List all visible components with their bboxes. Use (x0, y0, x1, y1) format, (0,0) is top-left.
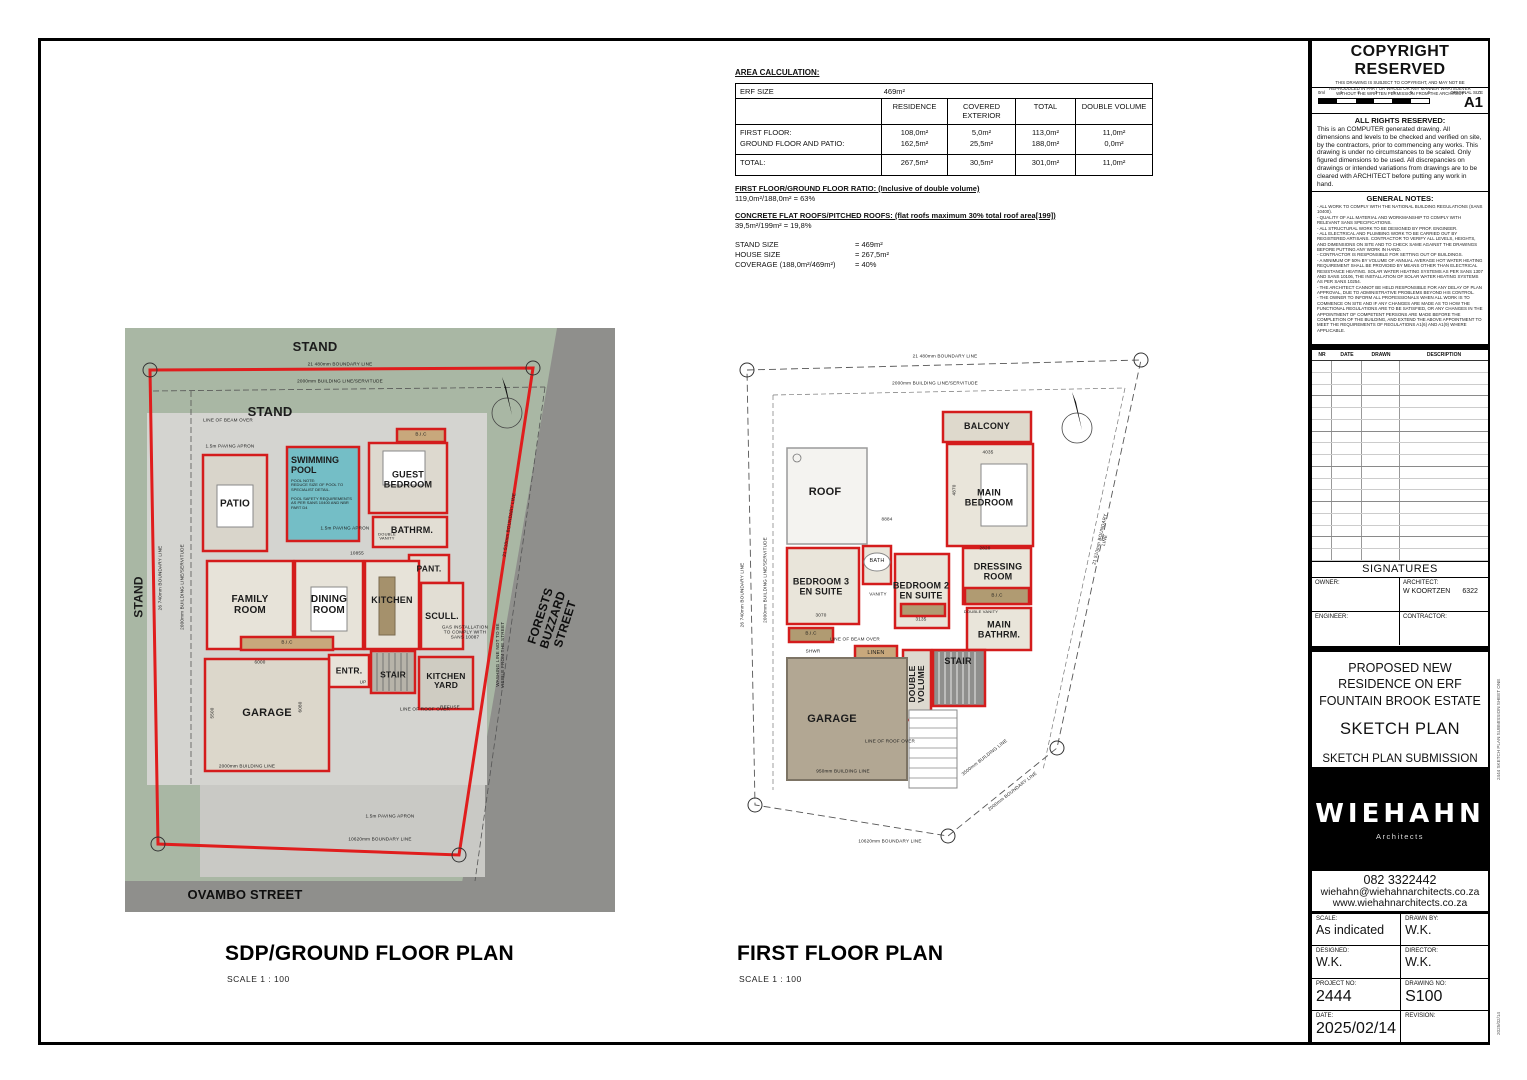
title-block: COPYRIGHT RESERVED THIS DRAWING IS SUBJE… (1308, 41, 1488, 1042)
area-calculation-table: ERF SIZE 469m² RESIDENCE COVERED EXTERIO… (735, 83, 1153, 176)
bic-label: B.I.C (415, 433, 426, 438)
pool-note: POOL NOTE: REDUCE SIZE OF POOL TO SPECIA… (291, 479, 352, 510)
vanity-label: VANITY (869, 593, 886, 598)
firm-website: www.wiehahnarchitects.co.za (1312, 898, 1488, 909)
dim-6000: 6000 (254, 661, 265, 666)
firm-tagline: Architects (1312, 832, 1488, 841)
revision-row (1312, 549, 1488, 561)
erf-size-value: 469m² (884, 87, 905, 95)
room-label-scullery: SCULL. (425, 612, 459, 622)
sheet-edge-note: 2444 SKETCH PLAN SUBMISSION SHEET ONE (1496, 679, 1501, 780)
paved-stand-lower (200, 785, 485, 877)
drawing-sheet: AREA CALCULATION: ERF SIZE 469m² RESIDEN… (0, 0, 1527, 1080)
room-label-bathrm: BATHRM. (391, 526, 433, 536)
north-arrow-icon (1062, 392, 1092, 443)
signatures-heading: SIGNATURES (1312, 562, 1488, 578)
revision-row (1312, 432, 1488, 444)
room-label-entrance: ENTR. (336, 666, 363, 675)
revision-row (1312, 455, 1488, 467)
building-line-bottom-dim: 2000mm BUILDING LINE (219, 765, 275, 770)
double-vanity-label: DOUBLE VANITY (964, 610, 998, 614)
col-double-volume: DOUBLE VOLUME (1075, 99, 1152, 125)
double-volume-label: DOUBLE VOLUME (908, 665, 926, 703)
table-header-row: RESIDENCE COVERED EXTERIOR TOTAL DOUBLE … (736, 99, 1152, 125)
ground-floor-plan: STAND 21 480mm BOUNDARY LINE 2000mm BUIL… (125, 325, 615, 917)
building-line-top-dim: 2000mm BUILDING LINE/SERVITUDE (297, 380, 383, 385)
room-label-dining-room: DINING ROOM (311, 595, 347, 617)
general-notes-section: GENERAL NOTES: - ALL WORK TO COMPLY WITH… (1312, 192, 1488, 350)
first-floor-plan-drawing (735, 350, 1165, 880)
drawn-by-field: DRAWN BY:W.K. (1400, 913, 1488, 945)
dim-8884: 8884 (881, 518, 892, 523)
firm-contact-block: 082 3322442 wiehahn@wiehahnarchitects.co… (1312, 871, 1488, 913)
room-label-roof: ROOF (809, 487, 842, 499)
boundary-top-dim: 21 480mm BOUNDARY LINE (913, 355, 978, 360)
room-label-main-bedroom: MAIN BEDROOM (965, 488, 1013, 507)
revision-row (1312, 373, 1488, 385)
stand-label-inner: STAND (248, 405, 293, 419)
designed-field: DESIGNED:W.K. (1312, 945, 1400, 977)
line-of-beam-note: LINE OF BEAM OVER (203, 419, 253, 424)
roofs-heading: CONCRETE FLAT ROOFS/PITCHED ROOFS: (flat… (735, 211, 1153, 220)
erf-size-label: ERF SIZE (740, 87, 774, 95)
building-line-top-dim: 2000mm BUILDING LINE/SERVITUDE (892, 382, 978, 387)
revision-row (1312, 502, 1488, 514)
col-total: TOTAL (1015, 99, 1075, 125)
rights-body: This is an COMPUTER generated drawing. A… (1317, 126, 1483, 188)
paving-apron-mid: 1.5m PAVING APRON (321, 527, 370, 532)
room-label-bedroom2: BEDROOM 2 EN SUITE (893, 581, 949, 600)
room-label-dressing-room: DRESSING ROOM (974, 562, 1023, 581)
street-label-ovambo: OVAMBO STREET (187, 888, 302, 902)
bedroom2-bic-shape (901, 604, 945, 616)
revision-table-header: NRDATEDRAWNDESCRIPTION (1312, 350, 1488, 361)
bath-label: BATH (869, 559, 884, 565)
room-label-stair: STAIR (944, 657, 971, 667)
first-plan-scale: SCALE 1 : 100 (739, 974, 802, 984)
ratio-heading: FIRST FLOOR/GROUND FLOOR RATIO: (Inclusi… (735, 184, 1153, 193)
room-label-guest-bedroom: GUEST BEDROOM (384, 470, 432, 489)
shwr-label: SHWR (806, 650, 821, 655)
paving-apron-bottom: 1.5m PAVING APRON (366, 815, 415, 820)
building-line-left-dim: 2000mm BUILDING LINE/SERVITUDE (181, 544, 186, 630)
garage-bic-label: B.I.C (281, 641, 292, 646)
dim-4870: 4870 (953, 484, 958, 495)
copyright-title: COPYRIGHT RESERVED (1312, 43, 1488, 79)
room-label-garage: GARAGE (807, 714, 856, 726)
line-of-roof-note: LINE OF ROOF OVER (400, 708, 450, 713)
stand-house-coverage: STAND SIZE= 469m² HOUSE SIZE= 267,5m² CO… (735, 240, 1153, 270)
revision-row (1312, 537, 1488, 549)
line-of-beam-note: LINE OF BEAM OVER (830, 638, 880, 643)
document-type: SKETCH PLAN (1312, 720, 1488, 739)
line-of-roof-note: LINE OF ROOF OVER (865, 740, 915, 745)
firm-phone: 082 3322442 (1312, 873, 1488, 887)
washing-line-note: WASHING LINE NOT TO BE VISIBLE FROM THE … (496, 622, 506, 689)
rights-heading: ALL RIGHTS RESERVED: (1317, 116, 1483, 125)
room-label-pantry: PANT. (417, 564, 442, 573)
wiehahn-logo: WIEHAHN (1312, 799, 1488, 829)
boundary-left-dim: 26 740mm BOUNDARY LINE (159, 546, 164, 611)
area-calculation: AREA CALCULATION: ERF SIZE 469m² RESIDEN… (735, 68, 1153, 270)
dim-6080: 6080 (299, 701, 304, 712)
stair-up-label: UP (360, 681, 367, 686)
original-size: ORIGINAL SIZE A1 (1450, 90, 1483, 110)
drawing-no-field: DRAWING NO:S100 (1400, 978, 1488, 1010)
general-notes-body: - ALL WORK TO COMPLY WITH THE NATIONAL B… (1317, 204, 1483, 333)
scale-field: SCALE:As indicated (1312, 913, 1400, 945)
project-title-section: PROPOSED NEW RESIDENCE ON ERF FOUNTAIN B… (1312, 652, 1488, 768)
bedroom3-bic-label: B.I.C (805, 632, 816, 637)
architect-cell: ARCHITECT: W KOORTZEN6322 (1400, 578, 1488, 612)
revision-row (1312, 361, 1488, 373)
dim-3070: 3070 (815, 614, 826, 619)
table-data-rows: FIRST FLOOR:GROUND FLOOR AND PATIO: 108,… (736, 125, 1152, 155)
owner-cell: OWNER: (1312, 578, 1400, 612)
revision-row (1312, 514, 1488, 526)
area-calculation-title: AREA CALCULATION: (735, 68, 1153, 77)
paving-apron-top: 1.5m PAVING APRON (206, 445, 255, 450)
drawing-fields: SCALE:As indicated DRAWN BY:W.K. DESIGNE… (1312, 913, 1488, 1042)
double-vanity-label: DOUBLE VANITY (378, 533, 396, 542)
firm-logo-block: WIEHAHN Architects (1312, 768, 1488, 871)
boundary-bottom-dim: 10620mm BOUNDARY LINE (858, 840, 921, 845)
col-covered-exterior: COVERED EXTERIOR (947, 99, 1015, 125)
revision-row (1312, 479, 1488, 491)
stand-label-left: STAND (133, 576, 146, 617)
revision-row (1312, 490, 1488, 502)
room-label-kitchen-yard: KITCHEN YARD (426, 672, 465, 690)
ground-plan-scale: SCALE 1 : 100 (227, 974, 290, 984)
building-line-left-dim: 2000mm BUILDING LINE/SERVITUDE (764, 537, 769, 623)
sheet-edge-date: 2025/02/14 (1496, 1012, 1501, 1035)
revision-row (1312, 467, 1488, 479)
exterior-stair-shape (909, 710, 957, 788)
room-label-family-room: FAMILY ROOM (232, 595, 269, 617)
dim-5500: 5500 (211, 707, 216, 718)
ratio-value: 119,0m²/188,0m² = 63% (735, 194, 1153, 203)
col-residence: RESIDENCE (881, 99, 947, 125)
first-plan-title: FIRST FLOOR PLAN (737, 942, 943, 966)
revision-row (1312, 396, 1488, 408)
room-label-patio: PATIO (220, 500, 250, 511)
room-label-main-bathrm: MAIN BATHRM. (978, 620, 1020, 639)
boundary-bottom-dim: 10620mm BOUNDARY LINE (348, 838, 411, 843)
scale-bar (1318, 98, 1430, 104)
project-title: PROPOSED NEW RESIDENCE ON ERF FOUNTAIN B… (1312, 660, 1488, 709)
room-label-bedroom3: BEDROOM 3 EN SUITE (793, 577, 849, 596)
dim-4035: 4035 (982, 451, 993, 456)
dim-3135: 3135 (915, 618, 926, 623)
dim-10855: 10855 (350, 552, 364, 557)
scale-bar-section: 0ml123456 ORIGINAL SIZE A1 (1312, 88, 1488, 114)
signatures-section: SIGNATURES OWNER: ARCHITECT: W KOORTZEN6… (1312, 562, 1488, 652)
boundary-top-dim: 21 480mm BOUNDARY LINE (308, 363, 373, 368)
room-label-swimming-pool: SWIMMING POOL (291, 455, 339, 475)
gas-note: GAS INSTALLATION TO COMPLY WITH SANS 100… (442, 626, 488, 641)
revision-row (1312, 385, 1488, 397)
scale-bar-ticks: 0ml123456 (1318, 90, 1430, 95)
linen-label: LINEN (867, 651, 884, 657)
roofs-value: 39,5m²/199m² = 19,8% (735, 221, 1153, 230)
room-label-garage: GARAGE (242, 708, 291, 720)
stand-label-top: STAND (293, 340, 338, 354)
project-no-field: PROJECT NO:2444 (1312, 978, 1400, 1010)
room-label-stair: STAIR (380, 670, 406, 679)
director-field: DIRECTOR:W.K. (1400, 945, 1488, 977)
revision-field: REVISION: (1400, 1010, 1488, 1042)
contractor-cell: CONTRACTOR: (1400, 612, 1488, 646)
building-line-garage-dim: 950mm BUILDING LINE (816, 770, 870, 775)
date-field: DATE:2025/02/14 (1312, 1010, 1400, 1042)
revision-row (1312, 420, 1488, 432)
revision-table: NRDATEDRAWNDESCRIPTION (1312, 350, 1488, 562)
revision-row (1312, 526, 1488, 538)
signatures-grid: OWNER: ARCHITECT: W KOORTZEN6322 ENGINEE… (1312, 578, 1488, 645)
room-label-kitchen: KITCHEN (371, 596, 412, 606)
general-notes-heading: GENERAL NOTES: (1317, 194, 1483, 203)
copyright-section: COPYRIGHT RESERVED THIS DRAWING IS SUBJE… (1312, 41, 1488, 88)
room-label-balcony: BALCONY (964, 422, 1010, 432)
dressing-bic-label: B.I.C (991, 594, 1002, 599)
dim-2820: 2820 (979, 547, 990, 552)
table-total-row: TOTAL: 267,5m² 30,5m² 301,0m² 11,0m² (736, 155, 1152, 175)
erf-size-row: ERF SIZE 469m² (736, 84, 1152, 99)
revision-row (1312, 408, 1488, 420)
first-floor-plan: 21 480mm BOUNDARY LINE 2000mm BUILDING L… (735, 350, 1165, 880)
firm-email: wiehahn@wiehahnarchitects.co.za (1312, 887, 1488, 898)
boundary-left-dim: 26 740mm BOUNDARY LINE (741, 563, 746, 628)
revision-row (1312, 443, 1488, 455)
engineer-cell: ENGINEER: (1312, 612, 1400, 646)
ground-plan-title: SDP/GROUND FLOOR PLAN (225, 942, 514, 966)
all-rights-section: ALL RIGHTS RESERVED: This is an COMPUTER… (1312, 114, 1488, 192)
